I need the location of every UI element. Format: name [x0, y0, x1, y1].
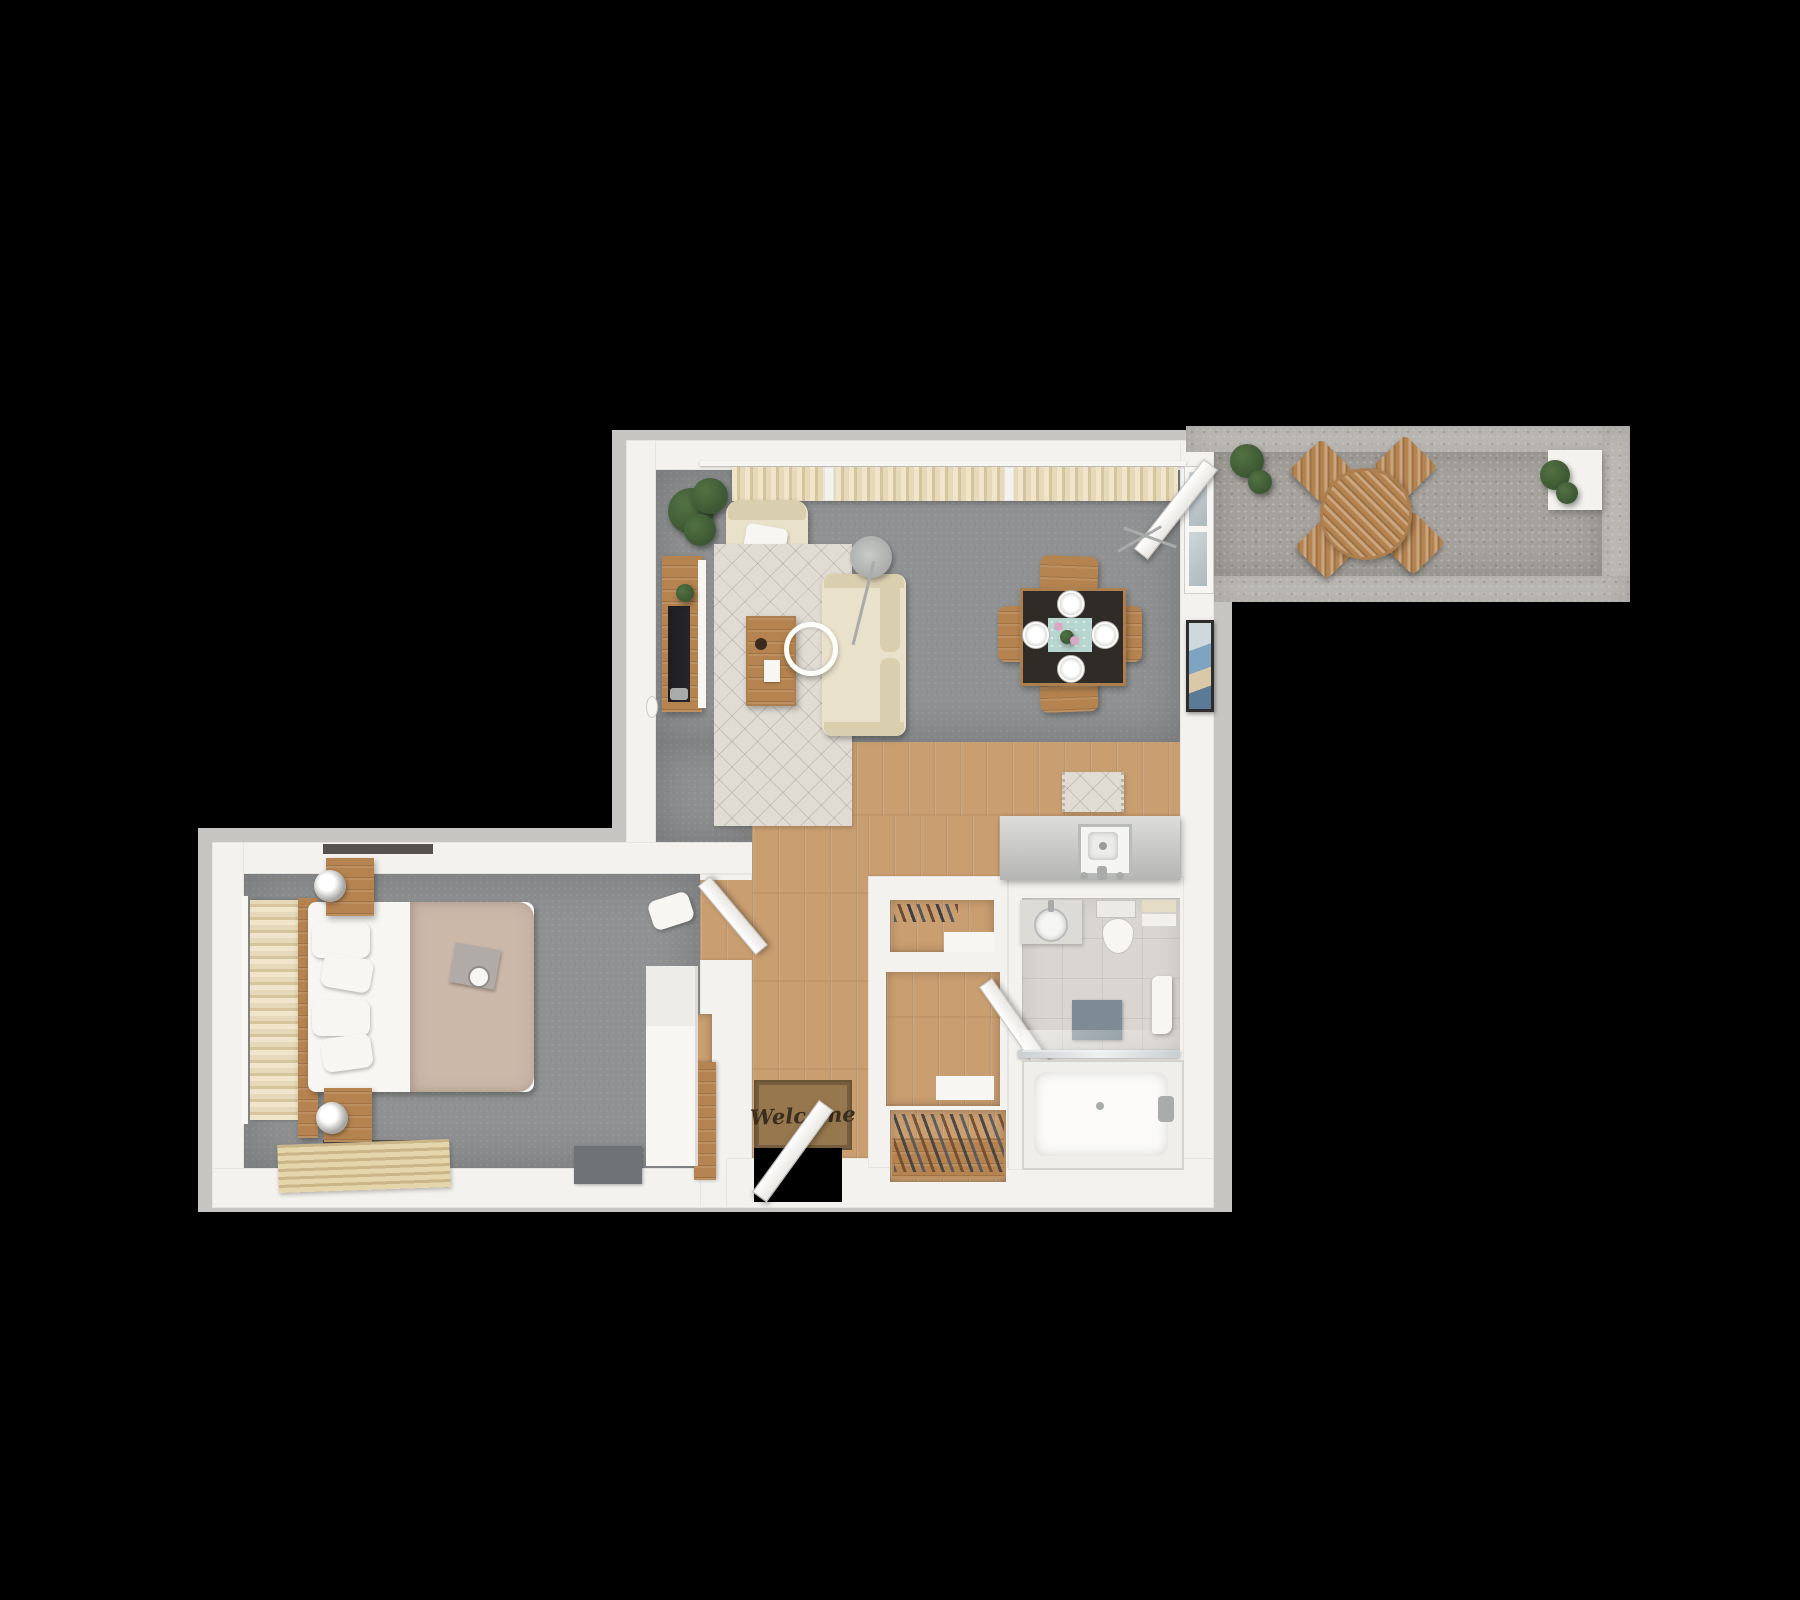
kitchen-knob-right	[1116, 872, 1124, 880]
sofa-arm-bottom	[824, 722, 904, 736]
tv-console-front	[698, 560, 706, 708]
bedroom-curtain-rod	[242, 896, 248, 1124]
bathtub-drain	[1096, 1102, 1104, 1110]
bathtub-inner	[1034, 1072, 1168, 1156]
table-lamp-top	[314, 870, 346, 902]
wall-art	[1186, 620, 1214, 712]
corner-plant-leaf	[692, 478, 728, 514]
bed-pillow-3	[312, 1000, 370, 1036]
balcony-bottom-wall	[1214, 576, 1630, 602]
curtain-rod	[700, 461, 1186, 466]
window-curtains	[732, 467, 1178, 501]
wall-sconce	[646, 696, 658, 718]
kitchen-knob-left	[1080, 872, 1088, 880]
place-setting-right	[1091, 621, 1119, 649]
console-plant	[676, 584, 694, 602]
shower-glass-sheen	[1022, 1030, 1180, 1052]
balcony-door-pane-2	[1189, 532, 1207, 586]
bathtub-faucet	[1158, 1096, 1174, 1122]
curtain-gap-2	[1004, 467, 1014, 501]
bedroom-slat-rug	[277, 1139, 451, 1193]
place-setting-left	[1022, 621, 1050, 649]
armchair-back	[728, 500, 806, 520]
hanging-towel	[1152, 976, 1172, 1034]
kitchen-sink-drain	[1099, 842, 1107, 850]
towel-stack	[1142, 900, 1176, 912]
wall-living-left	[626, 440, 656, 876]
balcony-plant-left-leaf	[1248, 470, 1272, 494]
breakfast-tray-plate	[468, 966, 490, 988]
bathroom-sink-basin	[1034, 908, 1068, 942]
floor-plan-scene: Welcome	[0, 0, 1800, 1600]
wardrobe-desk	[646, 966, 698, 1166]
flower-pink-2	[1070, 636, 1079, 645]
place-setting-top	[1057, 590, 1085, 618]
flower-pink-1	[1054, 622, 1063, 631]
balcony-round-table	[1320, 468, 1412, 560]
place-setting-bottom	[1057, 655, 1085, 683]
wall-bedroom-left	[212, 842, 244, 1208]
bedroom-doormat	[574, 1146, 642, 1184]
wall-bedroom-top	[212, 842, 758, 874]
table-lamp-bottom	[316, 1102, 348, 1134]
sofa-back-cushion-1	[880, 582, 900, 652]
coffee-table-book	[764, 660, 780, 682]
curtain-gap-1	[824, 467, 834, 501]
rim-right	[1214, 598, 1232, 1210]
shoe-rack-shoes	[894, 1114, 1004, 1172]
bathroom-faucet	[1048, 900, 1054, 912]
bathroom-vestibule-step	[936, 1076, 994, 1100]
bed-pillow-4	[320, 1033, 374, 1074]
bedroom-shelf-top	[323, 844, 433, 854]
corner-plant-leaf2	[684, 514, 716, 546]
kitchen-faucet	[1097, 866, 1107, 880]
balcony-plant-right-leaf	[1556, 482, 1578, 504]
toilet-tank	[1096, 900, 1136, 918]
console-speaker	[670, 688, 688, 700]
sofa-back-cushion-2	[880, 658, 900, 728]
closet-nook-top-shoes	[894, 904, 958, 922]
pendant-ring-light	[784, 622, 838, 676]
closet-nook-top-step	[944, 932, 994, 952]
kitchen-mat	[1062, 772, 1124, 812]
bed-duvet	[410, 902, 534, 1092]
coffee-table-coaster	[755, 638, 767, 650]
hall-floor-mid	[868, 816, 1000, 876]
bed-pillow-1	[312, 922, 370, 958]
